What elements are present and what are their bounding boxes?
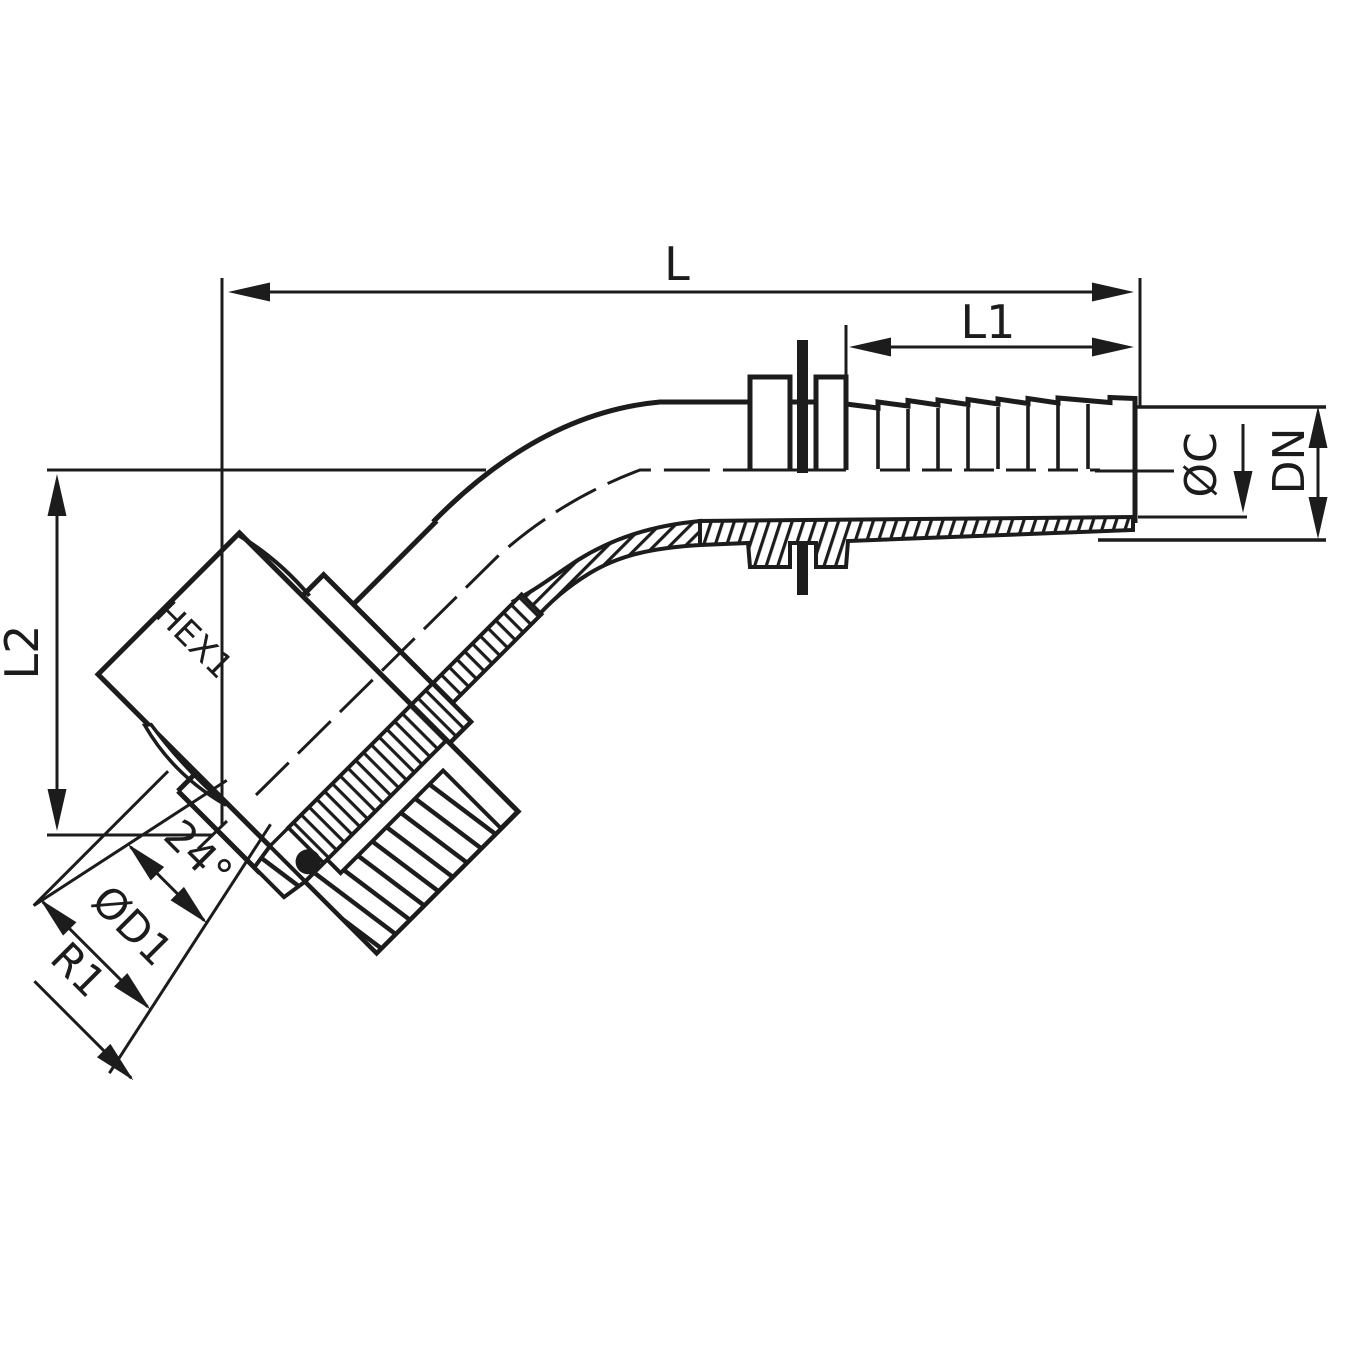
arrow-L-left <box>228 283 270 302</box>
barb-inner-lines <box>878 404 1088 469</box>
section-band-bend <box>514 521 700 621</box>
fitting-technical-drawing: L L1 L2 HEX1 24° ØD1 R1 ØC DN <box>0 0 1349 1349</box>
arrow-OC-down <box>1234 471 1253 513</box>
arrow-L2-bottom <box>48 789 67 831</box>
arrow-L1-right <box>1092 338 1134 357</box>
hose-tail-barbs <box>846 398 1135 524</box>
drawing-page: L L1 L2 HEX1 24° ØD1 R1 ØC DN <box>0 0 1349 1349</box>
label-overall-length: L <box>664 237 690 291</box>
collar-1 <box>750 377 790 470</box>
fitting-body <box>433 377 1326 621</box>
swivel-nut-assembly <box>0 423 628 1147</box>
label-nominal-diameter: DN <box>1264 428 1315 495</box>
collar-2 <box>816 377 846 470</box>
label-elbow-height: L2 <box>0 625 49 680</box>
bend-outer-edge <box>433 402 750 522</box>
section-band-tail <box>700 517 1133 567</box>
arrow-L2-top <box>48 474 67 516</box>
hose-stop-bar-lower <box>797 545 808 595</box>
label-thread: R1 <box>41 933 115 1007</box>
tube-wall-section <box>433 594 542 703</box>
tube-outer-edge <box>353 521 436 604</box>
label-tail-length: L1 <box>961 295 1016 349</box>
arrow-DN-down <box>1309 497 1328 539</box>
arrow-L-right <box>1092 283 1134 302</box>
hose-stop-bar-upper <box>797 340 808 473</box>
arrow-L1-left <box>849 338 891 357</box>
label-tail-diameter: ØC <box>1176 432 1227 497</box>
